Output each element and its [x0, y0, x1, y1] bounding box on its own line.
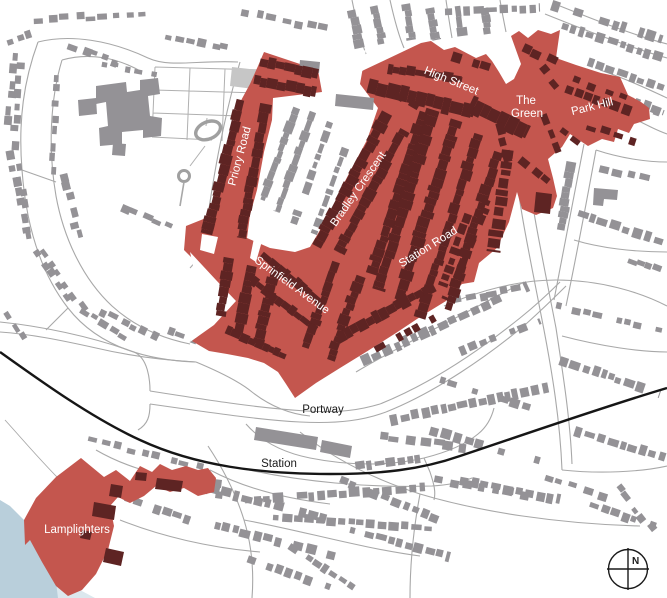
svg-text:N: N [632, 556, 639, 567]
svg-text:Station: Station [261, 458, 297, 470]
svg-text:Green: Green [511, 108, 543, 120]
svg-text:The: The [516, 95, 536, 107]
svg-text:Portway: Portway [302, 404, 344, 416]
svg-text:Lamplighters: Lamplighters [44, 524, 110, 536]
